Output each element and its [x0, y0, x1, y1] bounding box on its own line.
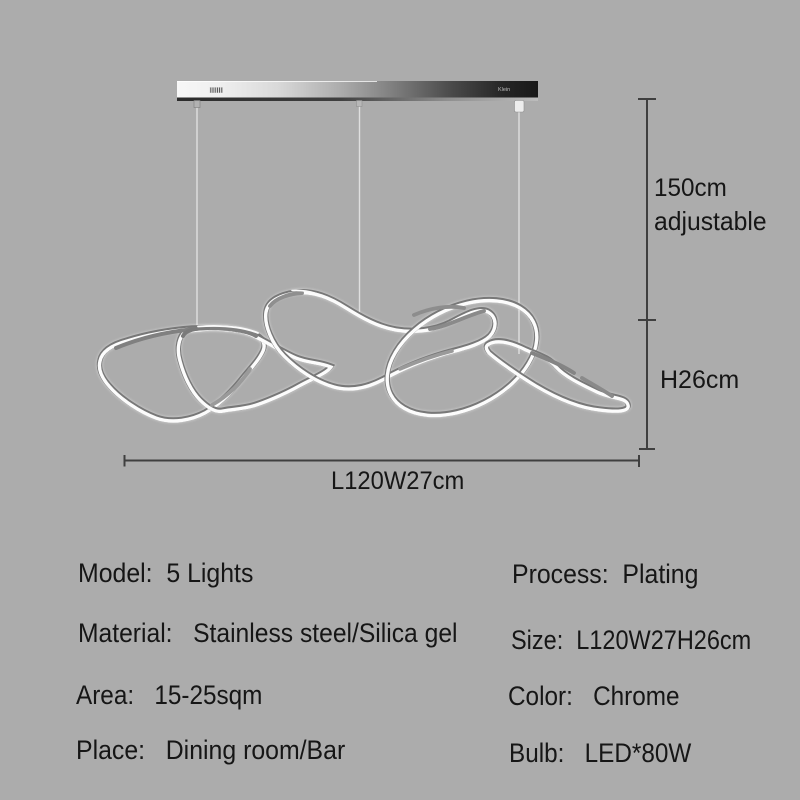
svg-text:Klein: Klein	[498, 87, 510, 93]
